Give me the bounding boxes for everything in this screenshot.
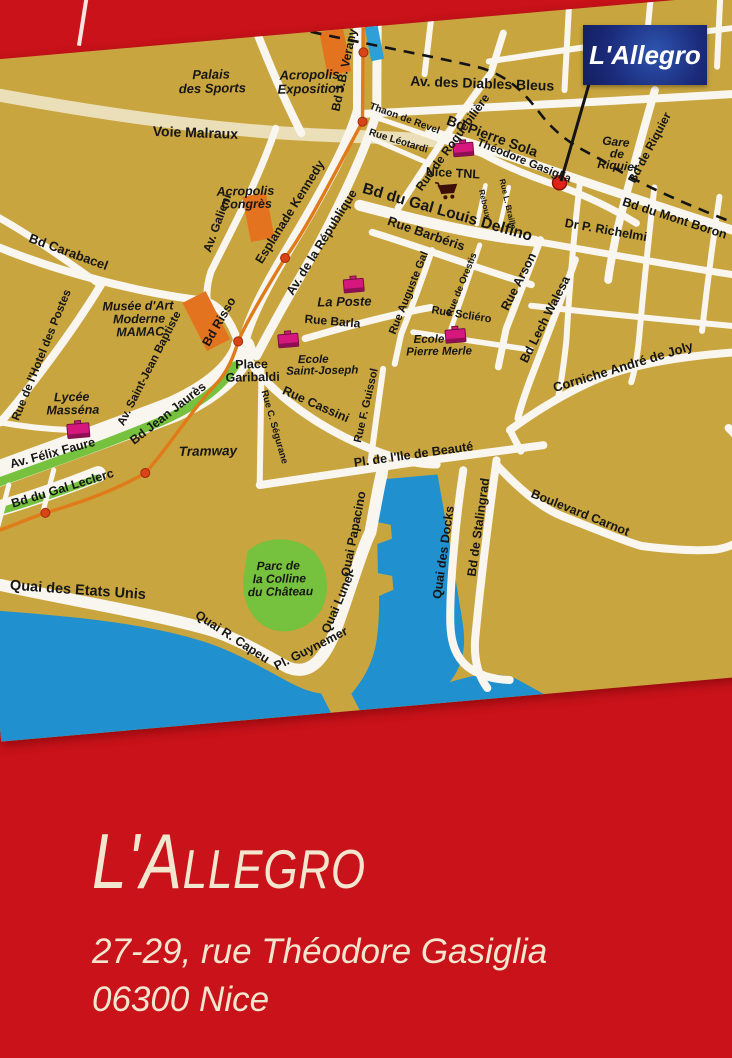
label-place-garibaldi: Garibaldi <box>225 370 279 385</box>
label-boulevard-carnot: Boulevard Carnot <box>529 487 632 540</box>
label-rue-scliero: Rue Scliéro <box>431 304 493 325</box>
label-nice-tnl: Nice TNL <box>425 165 480 182</box>
poi-icon-ecole-pierre-merle <box>445 326 466 344</box>
label-av-des-diables-bleus: Av. des Diables Bleus <box>410 73 555 94</box>
allegro-flag-label: L'Allegro <box>589 40 701 71</box>
label-la-poste: La Poste <box>317 294 371 310</box>
hotel-address: 27-29, rue Théodore Gasiglia 06300 Nice <box>92 928 547 1025</box>
label-rue-auguste-gal: Rue Auguste Gal <box>387 250 431 336</box>
poi-icon-la-poste <box>343 275 364 293</box>
allegro-flag: L'Allegro <box>583 25 707 85</box>
address-line-1: 27-29, rue Théodore Gasiglia <box>92 928 547 976</box>
label-ecole-pierre-merle: Pierre Merle <box>406 345 473 358</box>
shopping-cart-icon <box>435 181 458 200</box>
label-rue-barla: Rue Barla <box>304 312 361 331</box>
hotel-title: L'Allegro <box>92 822 456 900</box>
label-ecole-pierre-merle: Ecole <box>414 333 445 346</box>
label-tramway: Tramway <box>179 443 239 459</box>
label-lycee-massena: Masséna <box>46 403 99 418</box>
map-labels: Palais des Sports Acropolis Exposition V… <box>0 0 732 696</box>
map-photo: Palais des Sports Acropolis Exposition V… <box>0 0 732 742</box>
label-acropolis-congres: Congrès <box>221 197 272 212</box>
card-edge-line <box>77 0 89 46</box>
nice-street-map: Palais des Sports Acropolis Exposition V… <box>0 0 732 742</box>
poi-icon-ecole-saint-joseph <box>278 330 299 348</box>
label-ecole-saint-joseph: Saint-Joseph <box>286 365 358 378</box>
address-line-2: 06300 Nice <box>92 976 547 1024</box>
label-palais-des-sports: des Sports <box>179 80 246 96</box>
label-parc-colline-chateau: du Château <box>248 584 314 599</box>
label-voie-malraux: Voie Malraux <box>152 123 238 142</box>
label-corniche-andre-de-joly: Corniche André de Joly <box>551 338 695 395</box>
card-text-block: L'Allegro 27-29, rue Théodore Gasiglia 0… <box>92 822 547 1025</box>
